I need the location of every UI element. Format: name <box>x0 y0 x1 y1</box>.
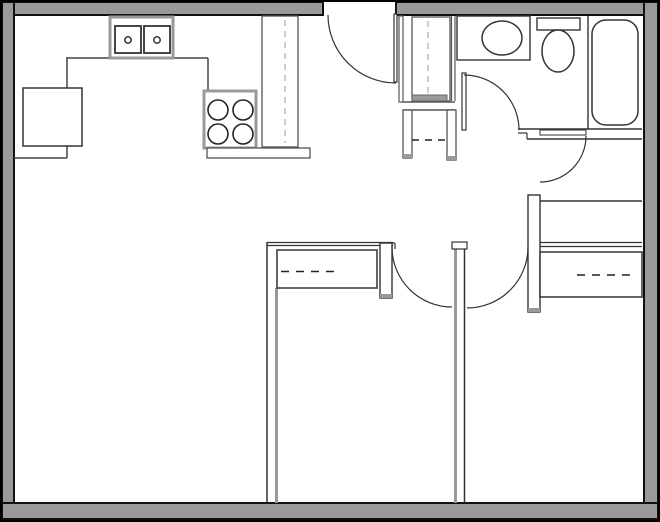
bathroom-door-leaf <box>462 73 466 130</box>
sink-drain-right <box>154 37 160 43</box>
hall-wing-wall-left-tip <box>380 294 392 298</box>
stove-burner-tl <box>208 100 228 120</box>
entry-closet-box <box>412 17 450 101</box>
stove-burner-tr <box>233 100 253 120</box>
bedroom1-closet-box <box>277 250 377 288</box>
bedroom2-entry-door-leaf <box>540 130 586 135</box>
entry-closet-base-band <box>412 95 447 101</box>
sink-drain-left <box>125 37 131 43</box>
stove-burner-bl <box>208 124 228 144</box>
hall-wing-wall-right <box>528 195 540 312</box>
kitchen-counter-end-bar <box>207 148 310 158</box>
hall-closet-leg-left <box>403 110 412 158</box>
wall-top-right-of-entry-door <box>396 2 658 15</box>
wall-top-left-of-entry-door <box>2 2 323 15</box>
entry-door-leaf <box>394 14 397 82</box>
wall-right <box>644 2 658 520</box>
toilet-bowl <box>542 30 574 72</box>
pantry-cabinet <box>262 16 298 147</box>
center-wall-cap <box>452 242 467 249</box>
hall-wing-wall-right-tip <box>528 308 540 312</box>
floor-plan-page <box>0 0 660 522</box>
hall-closet-leg-left-tip <box>403 154 412 158</box>
wall-left <box>2 2 14 520</box>
vanity-sink-oval <box>482 21 522 55</box>
floor-plan-drawing <box>0 0 660 522</box>
wall-bottom <box>2 503 658 519</box>
hall-closet-leg-right-tip <box>447 156 456 160</box>
toilet-tank <box>537 18 580 30</box>
entry-hall-wall <box>399 16 403 102</box>
bathtub <box>592 20 638 125</box>
stove-burner-br <box>233 124 253 144</box>
hall-closet-leg-right <box>447 110 456 160</box>
hall-wing-wall-left <box>380 243 392 298</box>
fridge <box>23 88 82 146</box>
